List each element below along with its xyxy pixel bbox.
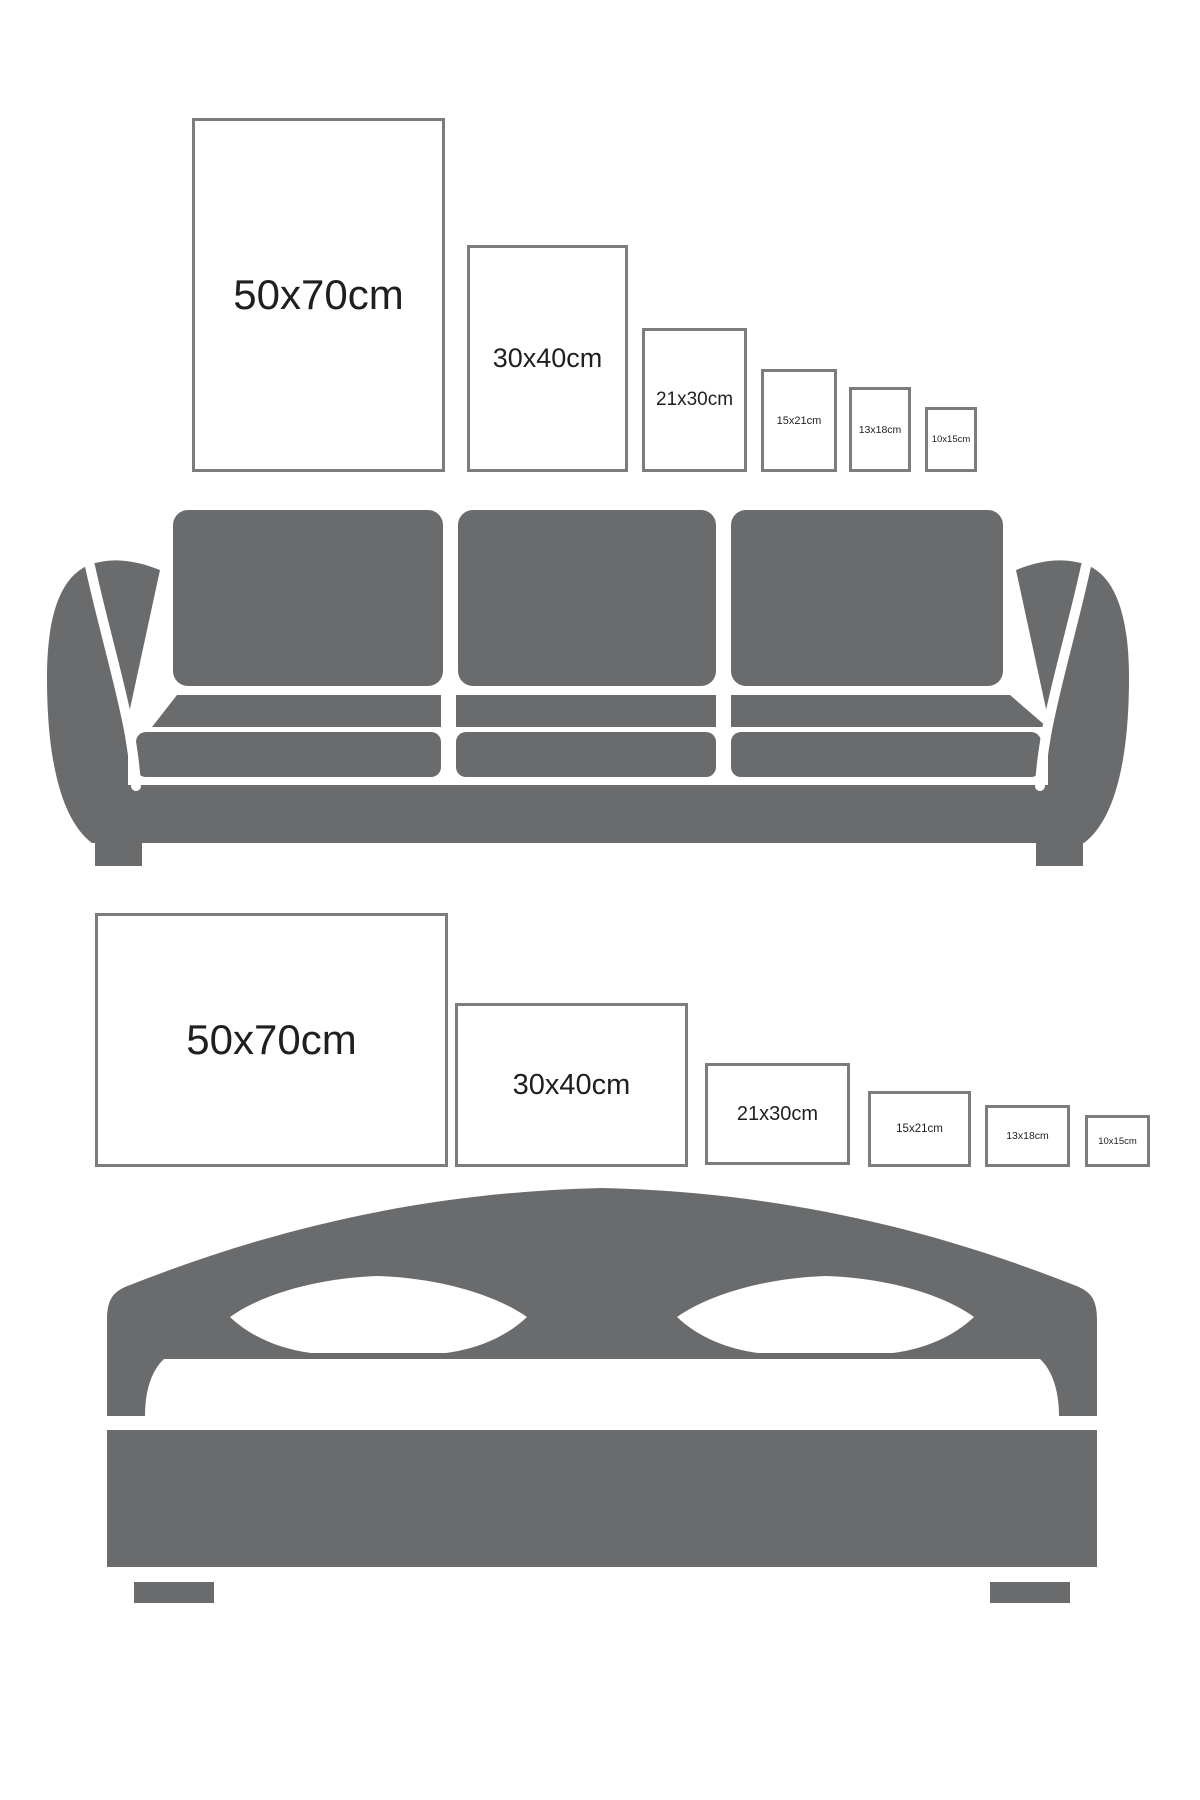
bed-icon bbox=[0, 1150, 1200, 1620]
sofa-seat-deck bbox=[456, 695, 716, 727]
size-label: 13x18cm bbox=[859, 424, 902, 436]
poster-size-guide: 50x70cm 30x40cm 21x30cm 15x21cm 13x18cm … bbox=[0, 0, 1200, 1800]
bed-base bbox=[107, 1430, 1097, 1567]
size-frame-13x18-portrait: 13x18cm bbox=[849, 387, 911, 472]
size-label: 15x21cm bbox=[896, 1123, 943, 1135]
sofa-seat-cushion bbox=[136, 732, 441, 777]
size-label: 13x18cm bbox=[1006, 1130, 1049, 1142]
size-label: 21x30cm bbox=[737, 1103, 818, 1126]
bed-headboard bbox=[107, 1188, 1097, 1416]
bed-leg-left bbox=[134, 1582, 214, 1603]
bed-leg-right bbox=[990, 1582, 1070, 1603]
size-label: 10x15cm bbox=[1098, 1136, 1137, 1147]
size-frame-21x30-portrait: 21x30cm bbox=[642, 328, 747, 472]
sofa-back-cushion bbox=[458, 510, 716, 686]
sofa-back-cushion bbox=[731, 510, 1003, 686]
size-label: 50x70cm bbox=[233, 271, 403, 319]
size-label: 21x30cm bbox=[656, 389, 733, 411]
sofa-seat-cushion bbox=[731, 732, 1041, 777]
sofa-seat-cushion bbox=[456, 732, 716, 777]
size-frame-30x40-portrait: 30x40cm bbox=[467, 245, 628, 472]
sofa-icon bbox=[0, 480, 1200, 890]
size-label: 30x40cm bbox=[493, 343, 603, 374]
size-label: 15x21cm bbox=[777, 415, 822, 427]
sofa-seat-deck bbox=[731, 695, 1047, 727]
sofa-back-cushion bbox=[173, 510, 443, 686]
sofa-leg-right bbox=[1036, 843, 1083, 866]
sofa-leg-left bbox=[95, 843, 142, 866]
size-label: 50x70cm bbox=[186, 1016, 356, 1064]
size-label: 10x15cm bbox=[932, 434, 971, 445]
size-label: 30x40cm bbox=[513, 1069, 631, 1102]
size-frame-15x21-portrait: 15x21cm bbox=[761, 369, 837, 472]
size-frame-30x40-landscape: 30x40cm bbox=[455, 1003, 688, 1167]
sofa-seat-deck bbox=[152, 695, 441, 727]
size-frame-10x15-portrait: 10x15cm bbox=[925, 407, 977, 472]
size-frame-50x70-landscape: 50x70cm bbox=[95, 913, 448, 1167]
size-frame-50x70-portrait: 50x70cm bbox=[192, 118, 445, 472]
